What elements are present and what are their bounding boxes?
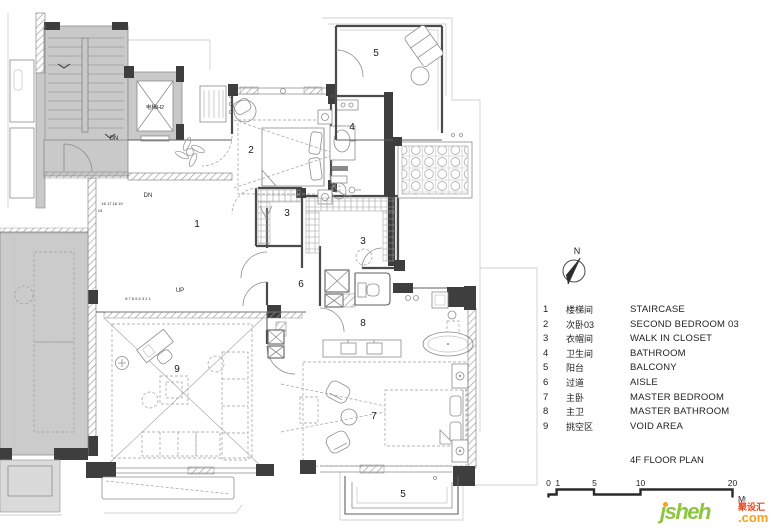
- legend-number: 2: [543, 318, 566, 333]
- legend-chinese: 衣帽间: [566, 332, 630, 347]
- legend-english: MASTER BATHROOM: [630, 405, 729, 420]
- legend-chinese: 主卫: [566, 405, 630, 420]
- legend-number: 4: [543, 347, 566, 362]
- legend-english: AISLE: [630, 376, 658, 391]
- site-logo[interactable]: jsheh TM 聚设汇 .com: [660, 498, 780, 527]
- legend-row: 7主卧MASTER BEDROOM: [543, 391, 780, 406]
- legend-number: 9: [543, 420, 566, 435]
- common-stairwell: [10, 13, 128, 208]
- legend-chinese: 阳台: [566, 361, 630, 376]
- legend-chinese: 次卧03: [566, 318, 630, 333]
- legend-number: 6: [543, 376, 566, 391]
- legend-english: MASTER BEDROOM: [630, 391, 724, 406]
- room-label-2: 2: [248, 145, 254, 156]
- floor-plan-drawing: 12334556789 电梯H2DNDNUP16 17 18 19158 7 6…: [0, 0, 540, 528]
- annotation-16 17 18 19: 16 17 18 19: [101, 201, 123, 206]
- legend-english: VOID AREA: [630, 420, 683, 435]
- duct-panel: [200, 86, 233, 122]
- room-label-6: 6: [298, 279, 304, 290]
- legend-row: 5阳台BALCONY: [543, 361, 780, 376]
- room-label-3: 3: [360, 236, 366, 247]
- legend-number: 1: [543, 303, 566, 318]
- legend-number: 3: [543, 332, 566, 347]
- room-label-9: 9: [174, 364, 180, 375]
- room-label-4: 4: [349, 122, 355, 133]
- legend-chinese: 挑空区: [566, 420, 630, 435]
- neighbour-unit: [0, 228, 88, 512]
- annotation-电梯H2: 电梯H2: [146, 103, 164, 111]
- legend-chinese: 主卧: [566, 391, 630, 406]
- room-label-1: 1: [194, 219, 200, 230]
- floor-plan-page: 12334556789 电梯H2DNDNUP16 17 18 19158 7 6…: [0, 0, 780, 528]
- annotation-15: 15: [98, 208, 103, 213]
- room3-closets: [258, 190, 405, 271]
- legend-english: BALCONY: [630, 361, 677, 376]
- room-label-8: 8: [360, 318, 366, 329]
- skylight-grid: [393, 134, 472, 199]
- room-label-7: 7: [371, 411, 377, 422]
- legend-row: 3衣帽间WALK IN CLOSET: [543, 332, 780, 347]
- legend-english: SECOND BEDROOM 03: [630, 318, 739, 333]
- legend-row: 9挑空区VOID AREA: [543, 420, 780, 435]
- logo-com-label: .com: [738, 511, 780, 524]
- north-label: N: [574, 246, 581, 256]
- legend-english: STAIRCASE: [630, 303, 685, 318]
- legend-english: BATHROOM: [630, 347, 686, 362]
- legend-chinese: 楼梯间: [566, 303, 630, 318]
- aisle-doors: [241, 252, 267, 306]
- legend-row: 4卫生间BATHROOM: [543, 347, 780, 362]
- north-arrow: N: [553, 244, 599, 290]
- annotation-DN: DN: [110, 136, 119, 142]
- annotation-UP: UP: [176, 288, 184, 294]
- plan-title: 4F FLOOR PLAN: [630, 455, 780, 466]
- legend-row: 6过道AISLE: [543, 376, 780, 391]
- logo-dot-icon: [663, 502, 668, 507]
- room4-bathroom: [330, 96, 384, 199]
- legend-list: 1楼梯间STAIRCASE2次卧03SECOND BEDROOM 033衣帽间W…: [543, 303, 780, 434]
- ceiling-fan-icon: [175, 137, 206, 168]
- legend-chinese: 过道: [566, 376, 630, 391]
- room9-void-area: [86, 312, 306, 499]
- legend-number: 5: [543, 361, 566, 376]
- annotation-8 7 6 5 4 3 2 1: 8 7 6 5 4 3 2 1: [125, 296, 151, 301]
- legend-panel: N 1楼梯间STAIRCASE2次卧03SECOND BEDROOM 033衣帽…: [543, 244, 780, 466]
- legend-number: 8: [543, 405, 566, 420]
- room-label-5: 5: [400, 489, 406, 500]
- legend-row: 1楼梯间STAIRCASE: [543, 303, 780, 318]
- legend-row: 8主卫MASTER BATHROOM: [543, 405, 780, 420]
- room8-master-bathroom: [320, 270, 473, 357]
- logo-right-block: TM 聚设汇 .com: [738, 498, 780, 524]
- room-label-5: 5: [373, 48, 379, 59]
- annotation-DN: DN: [144, 193, 153, 199]
- legend-english: WALK IN CLOSET: [630, 332, 712, 347]
- legend-row: 2次卧03SECOND BEDROOM 03: [543, 318, 780, 333]
- legend-chinese: 卫生间: [566, 347, 630, 362]
- room-label-3: 3: [284, 208, 290, 219]
- legend-number: 7: [543, 391, 566, 406]
